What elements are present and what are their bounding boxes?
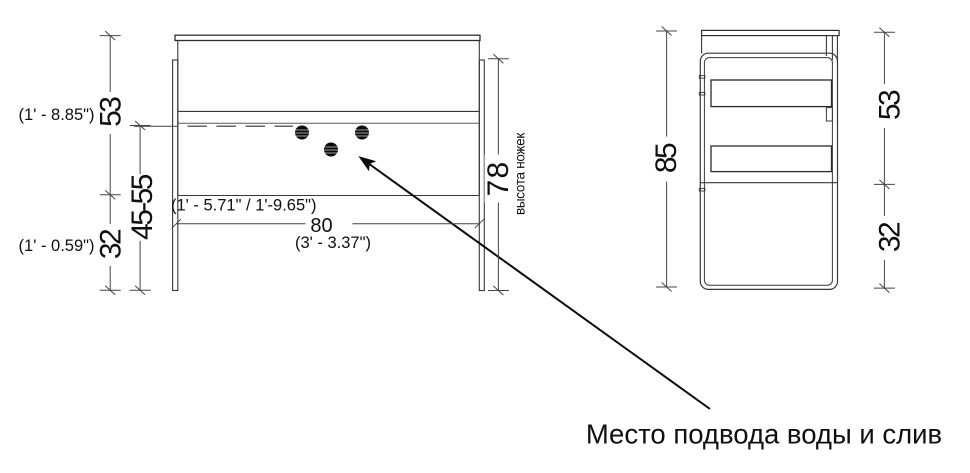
- svg-text:53: 53: [94, 97, 127, 127]
- svg-text:(1' - 8.85"): (1' - 8.85"): [19, 106, 95, 124]
- svg-text:(1' - 5.71" / 1'-9.65"): (1' - 5.71" / 1'-9.65"): [171, 197, 317, 215]
- svg-text:32: 32: [874, 222, 907, 252]
- svg-text:85: 85: [650, 143, 683, 173]
- svg-text:Место подвода воды и слив: Место подвода воды и слив: [586, 419, 942, 450]
- svg-text:32: 32: [94, 229, 127, 259]
- svg-text:высота ножек: высота ножек: [512, 133, 527, 215]
- svg-text:78: 78: [482, 161, 515, 197]
- svg-text:(3' - 3.37"): (3' - 3.37"): [295, 234, 371, 252]
- svg-text:53: 53: [874, 90, 907, 120]
- svg-text:45-55: 45-55: [126, 174, 159, 240]
- svg-text:(1' - 0.59"): (1' - 0.59"): [19, 237, 95, 255]
